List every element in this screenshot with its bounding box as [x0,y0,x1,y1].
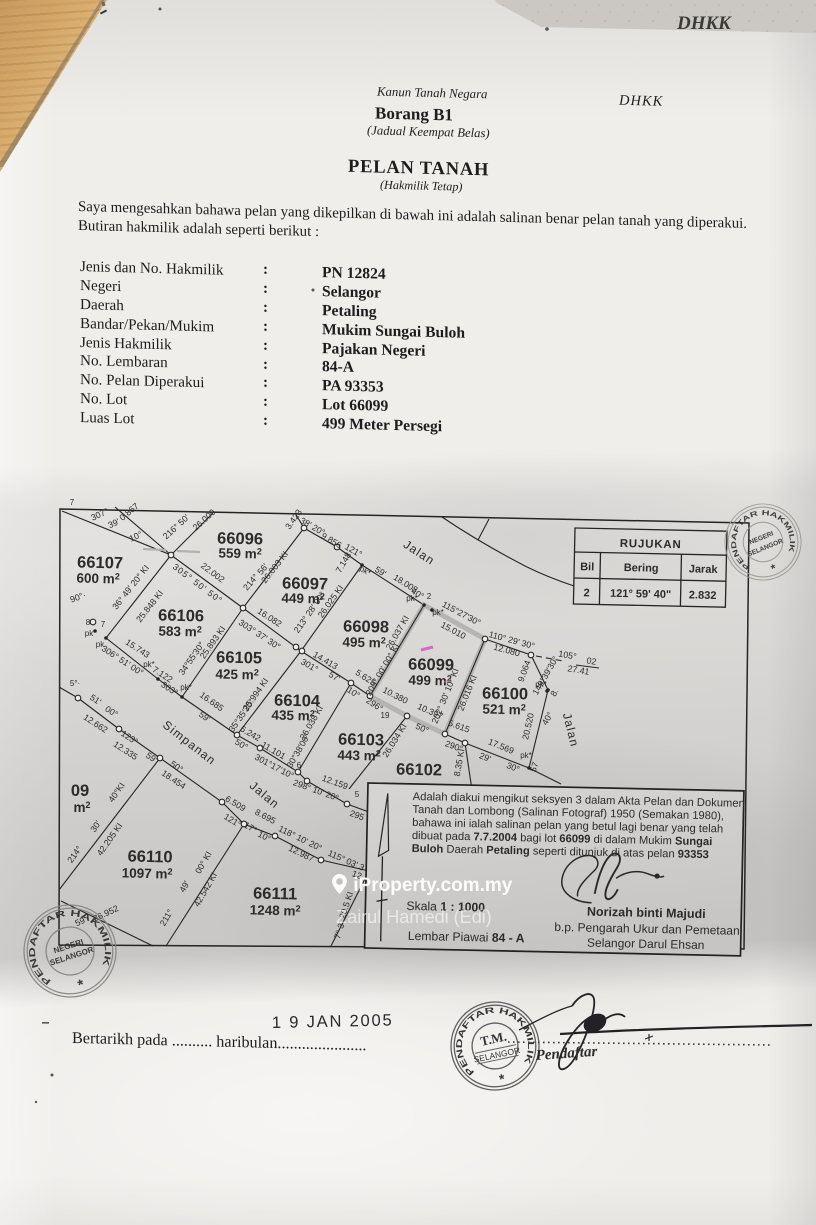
svg-text:105°: 105° [558,649,578,662]
svg-text:57': 57' [327,669,342,684]
svg-text:pk*: pk* [535,680,547,689]
svg-text:7.148: 7.148 [334,550,354,574]
svg-text:10°: 10° [256,829,272,844]
svg-text:1248 m2: 1248 m2 [250,902,301,918]
svg-text:66102: 66102 [396,760,442,779]
svg-text:30': 30' [88,818,103,833]
svg-text:9.856: 9.856 [319,531,343,551]
svg-text:SELANGOR: SELANGOR [473,1045,521,1065]
svg-text:59': 59' [197,709,212,724]
svg-text:115° 03' 3: 115° 03' 3 [326,848,366,873]
svg-text:66107: 66107 [77,553,123,572]
svg-text:49': 49' [177,879,192,894]
svg-text:RUJUKAN: RUJUKAN [620,538,682,551]
svg-text:495 m2: 495 m2 [342,635,386,651]
svg-text:66103: 66103 [338,730,384,749]
svg-text:40°KI: 40°KI [106,781,127,804]
svg-text:1 9 JAN 2005: 1 9 JAN 2005 [272,1011,394,1032]
svg-text:6: 6 [297,761,302,770]
svg-text:pk*: pk* [180,683,192,692]
svg-text:9.064: 9.064 [516,659,533,683]
svg-text:66100: 66100 [482,684,528,703]
svg-text:57: 57 [528,761,541,774]
svg-text:435 m2: 435 m2 [271,708,315,724]
svg-text:59': 59' [144,750,159,765]
svg-text:66106: 66106 [158,606,204,625]
svg-text:Pendaftar: Pendaftar [535,1044,598,1064]
svg-text:26.034 KI: 26.034 KI [380,722,408,759]
svg-text:Selangor Darul Ehsan: Selangor Darul Ehsan [587,936,705,952]
svg-text:2: 2 [427,592,432,601]
svg-text:66105: 66105 [216,648,262,667]
svg-text:8.: 8. [548,687,560,698]
svg-text:26.016 KI: 26.016 KI [456,674,479,713]
svg-text:Bering: Bering [624,562,659,575]
svg-text:121° 59' 40": 121° 59' 40" [610,588,671,601]
svg-text:303°: 303° [159,679,180,697]
svg-text:16.082: 16.082 [256,606,284,629]
svg-text:pk*: pk* [432,608,444,617]
svg-text:pk: pk [85,629,94,638]
svg-text:Bil: Bil [580,561,594,573]
svg-text:18.454: 18.454 [160,768,188,791]
svg-text:12.662: 12.662 [82,712,110,735]
svg-text:425 m2: 425 m2 [215,667,259,683]
svg-text:66099: 66099 [408,655,454,674]
svg-text:5: 5 [355,790,360,799]
svg-text:51': 51' [88,692,103,707]
svg-text:00°: 00° [103,704,120,720]
svg-text:2: 2 [583,587,589,599]
svg-text:600 m2: 600 m2 [76,571,120,587]
svg-text:19: 19 [381,711,390,720]
svg-text:66098: 66098 [343,617,389,636]
svg-text:pk*: pk* [358,564,373,578]
svg-text:66110: 66110 [127,847,172,866]
svg-text:443 m2: 443 m2 [337,748,381,764]
svg-text:8.35 KI: 8.35 KI [452,748,467,777]
svg-text:pk*: pk* [406,594,418,603]
svg-text:449 m2: 449 m2 [281,591,325,607]
svg-text:26.000: 26.000 [191,507,218,533]
svg-text:2.832: 2.832 [689,589,717,602]
svg-text:216° 50': 216° 50' [161,512,192,541]
svg-text:1097 m2: 1097 m2 [122,865,173,881]
svg-text:7: 7 [70,498,75,507]
svg-text:59': 59' [373,564,388,579]
svg-text:*: * [498,1070,507,1087]
svg-text:pk*: pk* [520,751,532,760]
svg-text:15.743: 15.743 [124,637,152,660]
svg-text:211°: 211° [158,907,175,927]
svg-text:30°: 30° [505,760,521,774]
svg-text:02: 02 [586,655,597,667]
svg-text:20.520: 20.520 [520,712,536,741]
svg-text:499 m2: 499 m2 [408,673,452,689]
svg-text:Norizah binti Majudi: Norizah binti Majudi [587,905,706,921]
svg-text:*: * [76,976,87,994]
svg-text:Jalan: Jalan [247,778,283,811]
svg-text:559 m2: 559 m2 [218,546,262,562]
svg-text:5°·: 5°· [70,679,80,688]
svg-text:09: 09 [71,782,89,800]
svg-text:5.615: 5.615 [447,718,471,735]
svg-text:Jalan: Jalan [401,537,438,568]
svg-text:Simpanan: Simpanan [160,718,219,768]
svg-text:Lembar Piawai 84 - A: Lembar Piawai 84 - A [408,929,525,945]
svg-text:Jarak: Jarak [689,563,719,576]
svg-text:7: 7 [101,620,106,629]
svg-text:8: 8 [86,618,91,627]
svg-text:T.M.: T.M. [479,1029,508,1049]
svg-text:Jalan: Jalan [560,712,582,749]
svg-text:121°: 121° [222,811,243,829]
svg-text:90°·: 90°· [69,590,88,605]
svg-text:10°: 10° [128,529,144,544]
svg-text:583 m2: 583 m2 [158,624,202,640]
svg-text:m2: m2 [73,800,90,815]
svg-text:42.542 KI: 42.542 KI [192,871,219,909]
svg-text:*: * [769,561,779,576]
svg-text:50°: 50° [233,737,250,752]
svg-text:66111: 66111 [253,885,297,904]
svg-text:521 m2: 521 m2 [482,702,526,718]
svg-text:10°: 10° [345,685,362,701]
